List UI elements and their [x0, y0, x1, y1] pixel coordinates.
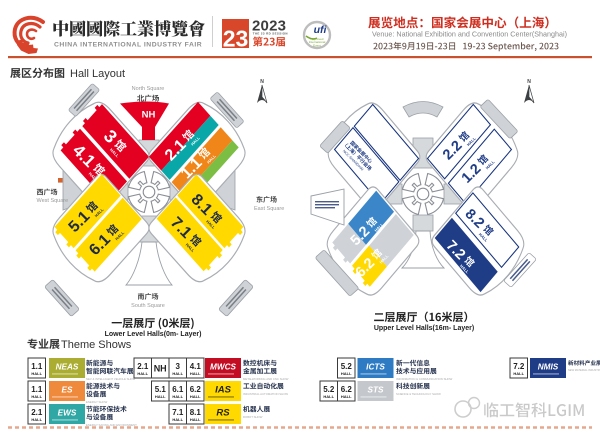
svg-text:Theme Shows: Theme Shows — [61, 339, 132, 351]
svg-text:8.1: 8.1 — [190, 408, 202, 417]
svg-text:East Square: East Square — [254, 206, 284, 212]
svg-text:N: N — [260, 79, 264, 85]
svg-text:Upper Level Halls(16m- Layer): Upper Level Halls(16m- Layer) — [374, 325, 474, 332]
svg-text:NEW MATERIAL INDUSTRY SHOW: NEW MATERIAL INDUSTRY SHOW — [568, 368, 600, 372]
svg-text:HALL: HALL — [341, 394, 352, 399]
svg-text:NMIS: NMIS — [538, 363, 559, 372]
svg-text:HALL: HALL — [155, 394, 166, 399]
svg-text:HALL: HALL — [513, 371, 524, 376]
svg-text:NEV & INTELLIGENT VEHICLE SHOW: NEV & INTELLIGENT VEHICLE SHOW — [86, 377, 136, 381]
svg-text:METALWORKING AND CNC SHOW: METALWORKING AND CNC SHOW — [243, 377, 289, 381]
svg-text:23: 23 — [223, 26, 249, 52]
svg-text:4.1: 4.1 — [190, 362, 202, 371]
svg-text:INFORMATION & COMMUNICATION SH: INFORMATION & COMMUNICATION SHOW — [396, 377, 453, 381]
svg-text:1.1: 1.1 — [31, 362, 43, 371]
svg-text:IAS: IAS — [215, 385, 232, 396]
svg-text:STS: STS — [368, 386, 384, 395]
svg-text:HALL: HALL — [172, 394, 183, 399]
svg-text:6.2: 6.2 — [341, 385, 353, 394]
svg-text:ENERGY SHOW: ENERGY SHOW — [86, 400, 108, 404]
svg-text:3: 3 — [176, 362, 181, 371]
svg-text:HALL: HALL — [31, 394, 42, 399]
svg-text:5.2: 5.2 — [341, 362, 353, 371]
svg-text:ROBOT SHOW: ROBOT SHOW — [243, 415, 263, 419]
svg-text:N: N — [527, 79, 531, 85]
svg-text:NH: NH — [142, 110, 156, 121]
svg-text:ES: ES — [62, 386, 73, 395]
svg-text:HALL: HALL — [172, 417, 183, 422]
svg-text:Lower Level Halls(0m- Layer): Lower Level Halls(0m- Layer) — [105, 331, 202, 338]
svg-text:2.1: 2.1 — [137, 362, 149, 371]
svg-text:6.2: 6.2 — [190, 385, 202, 394]
svg-text:THE 23 RD SESSION: THE 23 RD SESSION — [253, 31, 288, 35]
svg-text:2.1: 2.1 — [31, 408, 43, 417]
svg-text:5.2: 5.2 — [323, 385, 335, 394]
svg-text:HALL: HALL — [190, 371, 201, 376]
svg-text:1.1: 1.1 — [31, 385, 43, 394]
svg-text:INDUSTRIAL AUTOMATION SHOW: INDUSTRIAL AUTOMATION SHOW — [243, 392, 288, 396]
svg-text:West Square: West Square — [37, 198, 69, 204]
svg-text:HALL: HALL — [341, 371, 352, 376]
svg-text:Hall Layout: Hall Layout — [70, 68, 125, 80]
svg-text:HALL: HALL — [190, 417, 201, 422]
svg-text:7.1: 7.1 — [172, 408, 184, 417]
svg-text:ICTS: ICTS — [366, 363, 385, 372]
svg-text:MWCS: MWCS — [210, 363, 236, 372]
svg-text:ufi: ufi — [314, 24, 328, 36]
svg-text:HALL: HALL — [323, 394, 334, 399]
svg-text:NH: NH — [154, 364, 167, 374]
svg-text:CHINA INTERNATIONAL INDUSTRY F: CHINA INTERNATIONAL INDUSTRY FAIR — [54, 42, 202, 49]
svg-text:7.2: 7.2 — [513, 362, 525, 371]
svg-text:HALL: HALL — [137, 371, 148, 376]
svg-text:Event: Event — [313, 43, 321, 47]
svg-text:Venue: National Exhibition an: Venue: National Exhibition and Conventio… — [372, 30, 567, 39]
svg-text:6.1: 6.1 — [172, 385, 184, 394]
svg-text:HALL: HALL — [31, 417, 42, 422]
svg-text:RS: RS — [216, 408, 230, 419]
svg-text:NEAS: NEAS — [56, 363, 79, 372]
svg-text:HALL: HALL — [31, 371, 42, 376]
svg-text:South Square: South Square — [131, 303, 165, 309]
svg-text:HALL: HALL — [172, 371, 183, 376]
svg-text:North Square: North Square — [132, 86, 165, 92]
svg-text:SCIENCE & TECHNOLOGY SHOW: SCIENCE & TECHNOLOGY SHOW — [396, 392, 441, 396]
svg-text:EWS: EWS — [58, 409, 77, 418]
svg-text:HALL: HALL — [190, 394, 201, 399]
svg-text:5.1: 5.1 — [155, 385, 167, 394]
